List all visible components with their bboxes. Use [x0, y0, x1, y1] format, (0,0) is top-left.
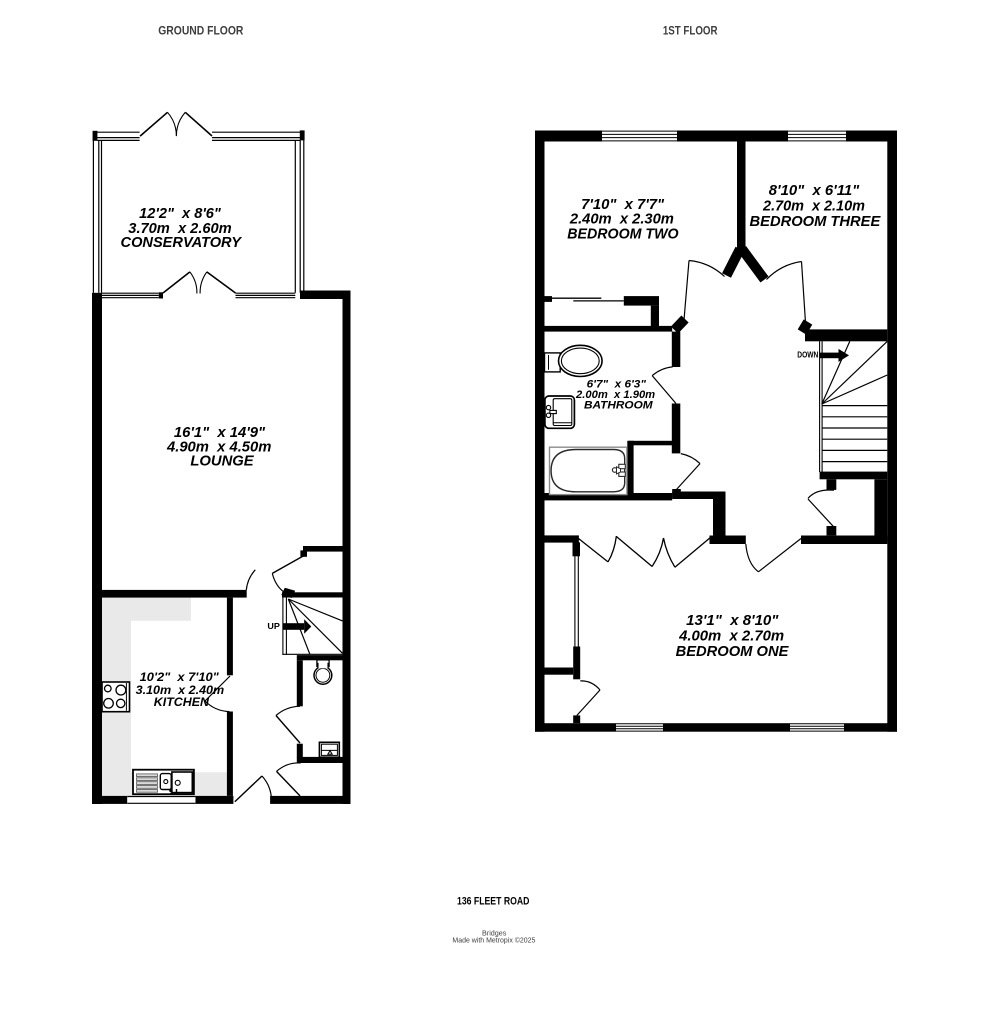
svg-text:UP: UP — [267, 621, 280, 631]
svg-text:136 FLEET ROAD: 136 FLEET ROAD — [457, 895, 530, 907]
svg-text:8'10" x 6'11": 8'10" x 6'11" — [769, 183, 860, 199]
svg-text:BATHROOM: BATHROOM — [584, 400, 654, 412]
svg-text:LOUNGE: LOUNGE — [190, 454, 254, 470]
svg-text:BEDROOM ONE: BEDROOM ONE — [676, 644, 789, 660]
svg-text:CONSERVATORY: CONSERVATORY — [121, 235, 243, 251]
svg-text:BEDROOM THREE: BEDROOM THREE — [750, 214, 881, 230]
svg-text:GROUND FLOOR: GROUND FLOOR — [158, 24, 244, 38]
svg-text:DOWN: DOWN — [797, 350, 818, 359]
svg-text:KITCHEN: KITCHEN — [154, 695, 210, 709]
svg-text:2.70m x 2.10m: 2.70m x 2.10m — [762, 199, 865, 215]
svg-text:2.40m x 2.30m: 2.40m x 2.30m — [569, 212, 674, 228]
svg-text:BEDROOM TWO: BEDROOM TWO — [567, 227, 678, 243]
svg-text:1ST FLOOR: 1ST FLOOR — [663, 24, 718, 38]
svg-text:10'2" x 7'10": 10'2" x 7'10" — [140, 670, 219, 684]
svg-text:4.00m x 2.70m: 4.00m x 2.70m — [678, 629, 784, 645]
svg-text:Made with Metropix ©2025: Made with Metropix ©2025 — [452, 936, 535, 945]
svg-text:13'1" x 8'10": 13'1" x 8'10" — [686, 613, 778, 629]
svg-text:12'2" x 8'6": 12'2" x 8'6" — [139, 206, 221, 222]
